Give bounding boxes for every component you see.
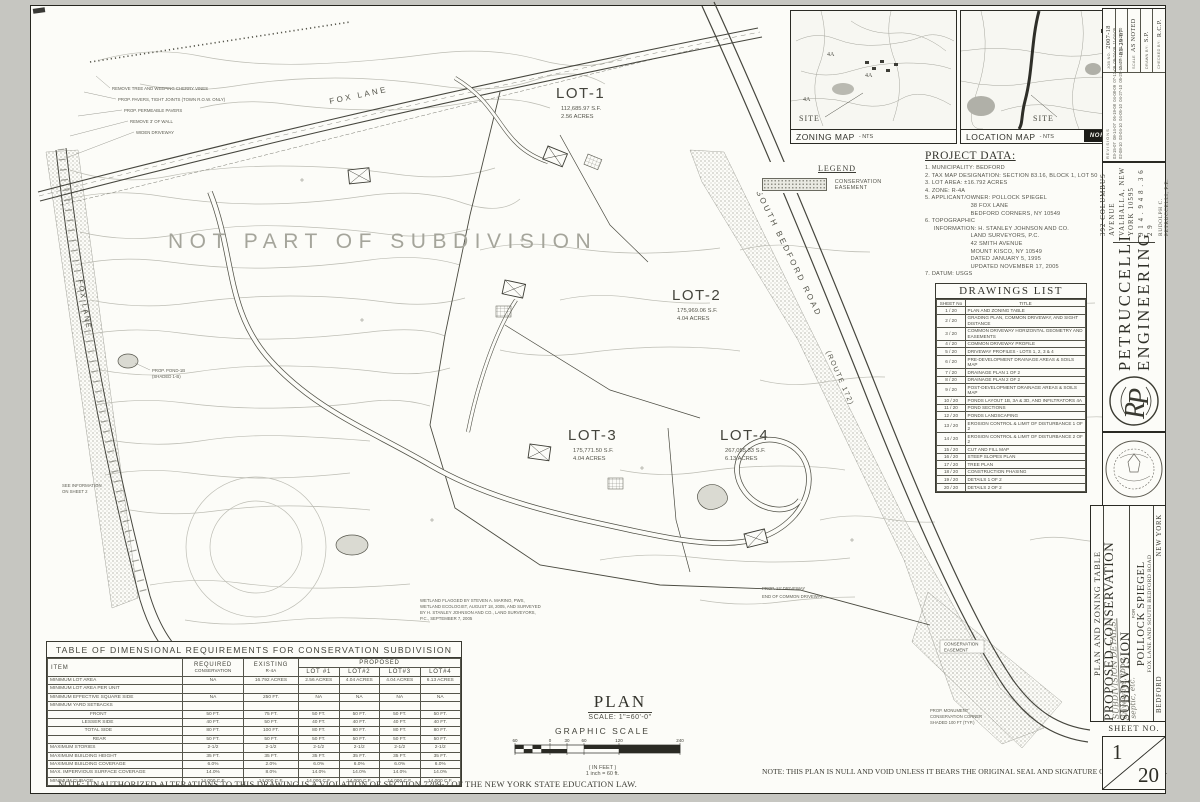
text-line: 6. TOPOGRAPHIC	[925, 218, 1097, 226]
graphic-scale-ratio: 1 inch = 60 ft.	[505, 771, 700, 777]
wetland-note: WETLAND FLAGGED BY STEVEN A. MARINO, PWS…	[420, 598, 541, 621]
town-state-row: BEDFORD NEW YORK	[1154, 506, 1165, 721]
table-cell: 35 FT.	[380, 752, 421, 760]
table-cell: DRAINAGE PLAN 2 OF 2	[966, 376, 1086, 384]
ponds	[118, 354, 728, 555]
table-cell: 40 FT.	[299, 718, 340, 726]
sheet-info-pane: JOB NO.2007-18 DATE03-29-07 SCALEAS NOTE…	[1103, 9, 1165, 72]
table-cell: 10 / 20	[937, 397, 966, 405]
table-cell: 13 / 20	[937, 419, 966, 432]
table-cell: PRE-DEVELOPMENT DRAINAGE AREAS & SOILS M…	[966, 355, 1086, 368]
table-cell: 50 FT.	[380, 710, 421, 718]
table-cell: PONDS LANDSCAPING	[966, 412, 1086, 420]
checked-by-field: CHECKED BY:R.C.P.	[1153, 9, 1165, 72]
table-cell	[339, 702, 380, 710]
septic-field	[608, 478, 623, 489]
table-cell: DRAINAGE PLAN 1 OF 2	[966, 368, 1086, 376]
svg-text:175,969.06 S.F.: 175,969.06 S.F.	[677, 308, 718, 314]
svg-text:LOT-4: LOT-4	[720, 427, 769, 444]
column-header-existing: EXISTINGR-4A	[244, 659, 299, 677]
text-line: 38 FOX LANE	[925, 203, 1097, 211]
petruccelli-logo-monogram: R P	[1106, 373, 1162, 429]
not-part-label: NOT PART OF SUBDIVISION	[168, 230, 597, 253]
text-line: 5. APPLICANT/OWNER: POLLOCK SPIEGEL	[925, 195, 1097, 203]
table-cell: PONDS LAYOUT 1B, 3A & 3D, AND INFILTRATO…	[966, 397, 1086, 405]
table-cell: 9 / 20	[937, 384, 966, 397]
client-name: POLLOCK SPIEGEL	[1136, 506, 1147, 721]
table-cell	[183, 685, 244, 693]
svg-text:EASEMENT: EASEMENT	[944, 648, 968, 653]
easement-label: CONSERVATION EASEMENT	[940, 640, 984, 653]
table-cell	[339, 685, 380, 693]
svg-text:PROP. PERMEABLE PAVERS: PROP. PERMEABLE PAVERS	[124, 108, 182, 113]
handwritten-annotation: SUBDIVISION DETAILS: driveways, topo, se…	[1109, 618, 1139, 720]
table-row: 16 / 20STEEP SLOPES PLAN	[937, 453, 1086, 461]
table-cell: 80 FT.	[380, 727, 421, 735]
text-line: BEDFORD CORNERS, NY 10549	[925, 211, 1097, 219]
table-row: MINIMUM LOT AREA PER UNIT	[48, 685, 461, 693]
table-row: MINIMUM LOT AREANA16.792 ACRES2.56 ACRES…	[48, 677, 461, 685]
table-cell: 35 FT.	[183, 752, 244, 760]
svg-text:267,055.33 S.F.: 267,055.33 S.F.	[725, 448, 766, 454]
dimensional-requirements-table: TABLE OF DIMENSIONAL REQUIREMENTS FOR CO…	[46, 641, 462, 787]
text-line: MOUNT KISCO, NY 10549	[925, 249, 1097, 257]
table-row: 11 / 20POND SECTIONS	[937, 404, 1086, 412]
svg-text:6.13 ACRES: 6.13 ACRES	[725, 456, 758, 462]
firm-name: PETRUCCELLI ENGINEERING	[1113, 242, 1155, 371]
table-cell: MINIMUM EFFECTIVE SQUARE SIDE	[48, 693, 183, 701]
state-label: NEW YORK	[1156, 514, 1163, 556]
table-cell: 4.04 ACRES	[339, 677, 380, 685]
table-row: MINIMUM EFFECTIVE SQUARE SIDENA250 FT.NA…	[48, 693, 461, 701]
lot-2-label: LOT-2 175,969.06 S.F. 4.04 ACRES	[672, 287, 721, 322]
prop-driveway-note: PROP. 12' DRIVEWAY	[762, 586, 805, 591]
table-cell: FRONT	[48, 710, 183, 718]
text-line: INFORMATION: H. STANLEY JOHNSON AND CO.	[925, 226, 1097, 234]
zone-label: 4A	[827, 52, 835, 58]
table-cell: COMMON DRIVEWAY HORIZONTAL GEOMETRY AND …	[966, 327, 1086, 340]
table-cell: EROSION CONTROL & LIMIT OF DISTURBANCE 1…	[966, 419, 1086, 432]
table-cell	[420, 702, 461, 710]
svg-text:SEE INFORMATION: SEE INFORMATION	[62, 483, 102, 488]
graphic-scale-bar: 60 0 30 60 120 240	[505, 736, 700, 760]
legend-item-label: CONSERVATION EASEMENT	[835, 179, 912, 191]
table-cell: NA	[339, 693, 380, 701]
septic-field	[584, 154, 602, 170]
table-cell: EROSION CONTROL & LIMIT OF DISTURBANCE 2…	[966, 432, 1086, 445]
drawn-by-field: DRAWN BY:S.P.	[1141, 9, 1154, 72]
svg-text:175,771.50 S.F.: 175,771.50 S.F.	[573, 448, 614, 454]
table-cell: NA	[183, 693, 244, 701]
lot-4-label: LOT-4 267,055.33 S.F. 6.13 ACRES	[720, 427, 769, 462]
table-cell: 7 / 20	[937, 368, 966, 376]
table-cell: PLAN AND ZONING TABLE	[966, 307, 1086, 315]
date-field: DATE03-29-07	[1116, 9, 1129, 72]
table-cell: NA	[380, 693, 421, 701]
revision-dates-row2: 02-08-10 03-04-10 04-05-10 04-27-10 05-2…	[1118, 75, 1123, 159]
svg-text:PROP. MONUMENT: PROP. MONUMENT	[930, 708, 969, 713]
revisions-label: REVISIONS	[1105, 75, 1110, 159]
zoning-map-graphic: 4A 4A 4A SITE	[791, 11, 956, 129]
table-cell: 6.0%	[420, 760, 461, 768]
table-row: 10 / 20PONDS LAYOUT 1B, 3A & 3D, AND INF…	[937, 397, 1086, 405]
table-row: REAR50 FT.50 FT.50 FT.50 FT.50 FT.50 FT.	[48, 735, 461, 743]
text-line: 42 SMITH AVENUE	[925, 241, 1097, 249]
construction-callouts: REMOVE TREE AND WEEPING CHERRY VINES PRO…	[66, 76, 226, 158]
table-cell: 5 / 20	[937, 348, 966, 356]
table-cell: 35 FT.	[420, 752, 461, 760]
table-row: 8 / 20DRAINAGE PLAN 2 OF 2	[937, 376, 1086, 384]
table-cell: CUT AND FILL MAP	[966, 445, 1086, 453]
table-cell: GRADING PLAN, COMMON DRIVEWAY, AND SIGHT…	[966, 314, 1086, 327]
table-cell: 4 / 20	[937, 340, 966, 348]
table-cell: MINIMUM LOT AREA PER UNIT	[48, 685, 183, 693]
table-cell: 50 FT.	[183, 710, 244, 718]
table-cell: 35 FT.	[299, 752, 340, 760]
table-row: 15 / 20CUT AND FILL MAP	[937, 445, 1086, 453]
table-cell: NA	[299, 693, 340, 701]
zoning-map-nts: - NTS	[859, 134, 873, 140]
table-cell: 2-1/2	[244, 744, 299, 752]
svg-text:4.04 ACRES: 4.04 ACRES	[573, 456, 606, 462]
table-row: 19 / 20DETAILS 1 OF 2	[937, 476, 1086, 484]
table-cell: 14 / 20	[937, 432, 966, 445]
svg-text:60: 60	[512, 738, 518, 743]
svg-text:60: 60	[581, 738, 587, 743]
table-row: 7 / 20DRAINAGE PLAN 1 OF 2	[937, 368, 1086, 376]
column-header-title: TITLE	[966, 300, 1086, 307]
table-cell: 16 / 20	[937, 453, 966, 461]
table-cell: 50 FT.	[420, 735, 461, 743]
table-cell	[244, 685, 299, 693]
table-cell: 6.0%	[299, 760, 340, 768]
job-number: JOB NO.2007-18	[1103, 9, 1116, 72]
zone-label: 4A	[803, 97, 811, 103]
table-cell: 80 FT.	[183, 727, 244, 735]
table-cell: 100 FT.	[244, 727, 299, 735]
sheet-number-box: 1 20	[1102, 736, 1166, 790]
table-cell: DRIVEWAY PROFILES - LOTS 1, 2, 3 & 4	[966, 348, 1086, 356]
table-cell: 11 / 20	[937, 404, 966, 412]
table-cell	[380, 702, 421, 710]
table-cell: CONSTRUCTION PHASING	[966, 468, 1086, 476]
table-cell: 50 FT.	[244, 735, 299, 743]
table-cell: 80 FT.	[420, 727, 461, 735]
legend-title: LEGEND	[762, 164, 912, 173]
table-row: 13 / 20EROSION CONTROL & LIMIT OF DISTUR…	[937, 419, 1086, 432]
table-cell: 6.0%	[339, 760, 380, 768]
svg-text:2.56 ACRES: 2.56 ACRES	[561, 114, 594, 120]
table-cell: 19 / 20	[937, 476, 966, 484]
table-cell: 12 / 20	[937, 412, 966, 420]
table-cell: POND SECTIONS	[966, 404, 1086, 412]
table-row: 14 / 20EROSION CONTROL & LIMIT OF DISTUR…	[937, 432, 1086, 445]
location-map-graphic: SITE	[961, 11, 1121, 129]
svg-text:PROP. PAVERS, TIGHT JOINTS (TO: PROP. PAVERS, TIGHT JOINTS (TOWN R.O.W. …	[118, 97, 226, 102]
table-cell: 50 FT.	[339, 710, 380, 718]
table-cell: 50 FT.	[183, 735, 244, 743]
table-cell: NA	[183, 677, 244, 685]
town-label: BEDFORD	[1156, 676, 1163, 713]
table-row: MAXIMUM BUILDING COVERAGE6.0%2.0%6.0%6.0…	[48, 760, 461, 768]
title-section: PLAN AND ZONING TABLE PROPOSED CONSERVAT…	[1090, 505, 1166, 722]
table-cell: DETAILS 1 OF 2	[966, 476, 1086, 484]
svg-text:LOT-2: LOT-2	[672, 287, 721, 304]
table-cell: 14.0%	[183, 769, 244, 777]
table-row: 5 / 20DRIVEWAY PROFILES - LOTS 1, 2, 3 &…	[937, 348, 1086, 356]
table-cell: 40 FT.	[339, 718, 380, 726]
site-label: SITE	[1033, 114, 1054, 123]
column-header-required: REQUIREDCONSERVATION	[183, 659, 244, 677]
table-row: 2 / 20GRADING PLAN, COMMON DRIVEWAY, AND…	[937, 314, 1086, 327]
end-driveway-note: END OF COMMON DRIVEWAY	[762, 594, 823, 599]
table-cell: 16.792 ACRES	[244, 677, 299, 685]
graphic-scale: GRAPHIC SCALE 60 0 30 60 120 240 ( IN FE…	[505, 726, 700, 777]
table-row: 3 / 20COMMON DRIVEWAY HORIZONTAL GEOMETR…	[937, 327, 1086, 340]
table-cell	[244, 702, 299, 710]
table-cell: 6.0%	[183, 760, 244, 768]
table-cell: NA	[420, 693, 461, 701]
table-cell: 14.0%	[380, 769, 421, 777]
svg-text:(SHADED 1-B): (SHADED 1-B)	[152, 374, 181, 379]
table-cell: 50 FT.	[339, 735, 380, 743]
table-cell: 8 / 20	[937, 376, 966, 384]
table-row: MAX. IMPERVIOUS SURFACE COVERAGE14.0%8.0…	[48, 769, 461, 777]
table-cell	[380, 685, 421, 693]
table-cell: 2-1/2	[339, 744, 380, 752]
project-data-title: PROJECT DATA:	[925, 150, 1097, 162]
svg-text:P.C., SEPTEMBER 7, 2005: P.C., SEPTEMBER 7, 2005	[420, 616, 473, 621]
table-row: 9 / 20POST-DEVELOPMENT DRAINAGE AREAS & …	[937, 384, 1086, 397]
table-row: MAXIMUM STORIES2-1/22-1/22-1/22-1/22-1/2…	[48, 744, 461, 752]
graphic-scale-title: GRAPHIC SCALE	[505, 726, 700, 736]
site-label: SITE	[799, 114, 820, 123]
table-cell: 35 FT.	[339, 752, 380, 760]
client-row: SUBDIVISION DETAILS: driveways, topo, se…	[1130, 506, 1154, 721]
table-cell: MAXIMUM STORIES	[48, 744, 183, 752]
table-cell: 20 / 20	[937, 483, 966, 491]
table-row: 4 / 20COMMON DRIVEWAY PROFILE	[937, 340, 1086, 348]
project-data: PROJECT DATA: 1. MUNICIPALITY: BEDFORD2.…	[925, 150, 1097, 279]
drawings-list: DRAWINGS LIST SHEET No TITLE 1 / 20PLAN …	[935, 283, 1087, 493]
project-location: FOX LANE AND SOUTH BEDFORD ROAD	[1147, 506, 1153, 721]
sheet-total: 20	[1138, 763, 1159, 788]
zone-label: 4A	[865, 73, 873, 79]
location-map-nts: - NTS	[1040, 134, 1054, 140]
svg-text:SHADED 100 FT (TYP.): SHADED 100 FT (TYP.)	[930, 720, 975, 725]
table-cell: 6.0%	[380, 760, 421, 768]
svg-text:WETLAND ECOLOGIST, AUGUST 18,: WETLAND ECOLOGIST, AUGUST 18, 2005, AND …	[420, 604, 541, 609]
text-line: LAND SURVEYORS, P.C.	[925, 233, 1097, 241]
table-cell: 2.0%	[244, 760, 299, 768]
table-cell: 2-1/2	[380, 744, 421, 752]
firm-address: 392 COLUMBUS AVENUE VALHALLA, NEW YORK 1…	[1099, 163, 1170, 242]
table-cell: 14.0%	[299, 769, 340, 777]
lot-3-label: LOT-3 175,771.50 S.F. 4.04 ACRES	[568, 427, 617, 462]
table-cell: 8.0%	[244, 769, 299, 777]
svg-text:LOT-1: LOT-1	[556, 85, 605, 102]
svg-text:REMOVE 3' OF WALL: REMOVE 3' OF WALL	[130, 119, 174, 124]
table-row: LESSER SIDE40 FT.50 FT.40 FT.40 FT.40 FT…	[48, 718, 461, 726]
revision-dates-row1: 03-15-07 08-14-07 06-19-08 04-08-09 07-1…	[1112, 75, 1117, 159]
table-cell: 6 / 20	[937, 355, 966, 368]
table-row: 12 / 20PONDS LANDSCAPING	[937, 412, 1086, 420]
engineer-seal	[1104, 436, 1164, 502]
table-cell: MAXIMUM BUILDING COVERAGE	[48, 760, 183, 768]
table-cell: 14.0%	[420, 769, 461, 777]
location-map-caption: LOCATION MAP - NTS NORTH	[961, 129, 1121, 143]
table-cell: 6.13 ACRES	[420, 677, 461, 685]
lot-1-label: LOT-1 112,685.97 S.F. 2.56 ACRES	[556, 85, 605, 120]
svg-text:CONSERVATION: CONSERVATION	[944, 642, 978, 647]
conservation-easement-swatch	[762, 178, 827, 191]
text-line: 3. LOT AREA: ±16.792 ACRES	[925, 180, 1097, 188]
sheet-number: 1	[1112, 740, 1123, 765]
text-line: 2. TAX MAP DESIGNATION: SECTION 83.16, B…	[925, 173, 1097, 181]
table-cell: REAR	[48, 735, 183, 743]
table-cell: 40 FT.	[420, 718, 461, 726]
column-header-lot3: LOT#3	[380, 668, 421, 677]
table-cell: 80 FT.	[339, 727, 380, 735]
column-header-proposed: PROPOSED	[299, 659, 461, 668]
column-header-lot1: LOT #1	[299, 668, 340, 677]
table-row: TOTAL SIDE80 FT.100 FT.80 FT.80 FT.80 FT…	[48, 727, 461, 735]
svg-text:0: 0	[549, 738, 552, 743]
table-cell: 17 / 20	[937, 461, 966, 469]
table-row: 17 / 20TREE PLAN	[937, 461, 1086, 469]
table-cell: 50 FT.	[420, 710, 461, 718]
dimensional-table-title: TABLE OF DIMENSIONAL REQUIREMENTS FOR CO…	[47, 642, 461, 658]
pond-callout: PROP. POND-1B (SHADED 1-B)	[135, 363, 185, 379]
text-line: 4. ZONE: R-4A	[925, 188, 1097, 196]
table-cell	[420, 685, 461, 693]
table-cell: 2-1/2	[420, 744, 461, 752]
engineering-firm-block: R P PETRUCCELLI ENGINEERING 392 COLUMBUS…	[1102, 162, 1166, 432]
scale-field: SCALEAS NOTED	[1128, 9, 1141, 72]
drawings-list-table: SHEET No TITLE 1 / 20PLAN AND ZONING TAB…	[936, 299, 1086, 492]
table-cell: COMMON DRIVEWAY PROFILE	[966, 340, 1086, 348]
location-map-title: LOCATION MAP	[966, 132, 1036, 142]
table-cell: DETAILS 2 OF 2	[966, 483, 1086, 491]
svg-text:4.04 ACRES: 4.04 ACRES	[677, 316, 710, 322]
zoning-map-panel: 4A 4A 4A SITE ZONING MAP - NTS	[790, 10, 957, 144]
table-cell: 250 FT.	[244, 693, 299, 701]
text-line: 7. DATUM: USGS	[925, 271, 1097, 279]
table-cell: 80 FT.	[299, 727, 340, 735]
table-row: MAXIMUM BUILDING HEIGHT35 FT.35 FT.35 FT…	[48, 752, 461, 760]
text-line: DATED JANUARY 5, 1995	[925, 256, 1097, 264]
revision-info-box: REVISIONS 03-15-07 08-14-07 06-19-08 04-…	[1102, 8, 1166, 162]
zoning-map-caption: ZONING MAP - NTS	[791, 129, 956, 143]
table-cell: 2.56 ACRES	[299, 677, 340, 685]
column-header-lot2: LOT#2	[339, 668, 380, 677]
svg-text:120: 120	[615, 738, 623, 743]
table-row: 1 / 20PLAN AND ZONING TABLE	[937, 307, 1086, 315]
table-row: 6 / 20PRE-DEVELOPMENT DRAINAGE AREAS & S…	[937, 355, 1086, 368]
table-cell: 18 / 20	[937, 468, 966, 476]
table-cell: MINIMUM LOT AREA	[48, 677, 183, 685]
table-row: MINIMUM YARD SETBACKS	[48, 702, 461, 710]
plan-title-block: PLAN SCALE: 1"=60'-0"	[560, 692, 680, 721]
plan-title: PLAN	[588, 692, 652, 713]
drawings-list-title: DRAWINGS LIST	[936, 284, 1086, 299]
table-cell: 50 FT.	[299, 735, 340, 743]
table-cell: 50 FT.	[244, 718, 299, 726]
zoning-map-title: ZONING MAP	[796, 132, 855, 142]
svg-text:240: 240	[676, 738, 684, 743]
svg-text:CONSERVATION CORNER: CONSERVATION CORNER	[930, 714, 982, 719]
column-header-item: ITEM	[48, 659, 183, 677]
table-cell: 75 FT.	[244, 710, 299, 718]
svg-text:BY H. STANLEY JOHNSON AND CO.,: BY H. STANLEY JOHNSON AND CO., LAND SURV…	[420, 610, 536, 615]
table-cell: 14.0%	[339, 769, 380, 777]
table-cell: POST-DEVELOPMENT DRAINAGE AREAS & SOILS …	[966, 384, 1086, 397]
table-cell	[183, 702, 244, 710]
svg-text:REMOVE TREE AND WEEPING CHERRY: REMOVE TREE AND WEEPING CHERRY VINES	[112, 86, 208, 91]
table-row: 18 / 20CONSTRUCTION PHASING	[937, 468, 1086, 476]
table-cell: STEEP SLOPES PLAN	[966, 453, 1086, 461]
table-cell: 2 / 20	[937, 314, 966, 327]
column-header-lot4: LOT#4	[420, 668, 461, 677]
table-cell: 4.04 ACRES	[380, 677, 421, 685]
text-line: 1. MUNICIPALITY: BEDFORD	[925, 165, 1097, 173]
revisions-pane: REVISIONS 03-15-07 08-14-07 06-19-08 04-…	[1103, 72, 1165, 161]
table-cell	[299, 702, 340, 710]
table-cell	[299, 685, 340, 693]
svg-text:30: 30	[564, 738, 570, 743]
table-cell: TREE PLAN	[966, 461, 1086, 469]
table-cell: TOTAL SIDE	[48, 727, 183, 735]
plan-scale: SCALE: 1"=60'-0"	[560, 714, 680, 721]
septic-field	[496, 306, 511, 317]
project-data-lines: 1. MUNICIPALITY: BEDFORD2. TAX MAP DESIG…	[925, 165, 1097, 279]
table-cell: 2-1/2	[299, 744, 340, 752]
education-law-note: NOTE: UNAUTHORIZED ALTERATIONS TO THIS D…	[58, 779, 637, 789]
text-line: UPDATED NOVEMBER 17, 2005	[925, 264, 1097, 272]
table-cell: MAX. IMPERVIOUS SURFACE COVERAGE	[48, 769, 183, 777]
legend: LEGEND CONSERVATION EASEMENT	[758, 162, 916, 193]
table-cell: MAXIMUM BUILDING HEIGHT	[48, 752, 183, 760]
engineer-name: RUDOLPH C. PETRUCCELLI, P.E.	[1158, 163, 1170, 236]
svg-text:LOT-3: LOT-3	[568, 427, 617, 444]
location-map-panel: SITE LOCATION MAP - NTS NORTH	[960, 10, 1122, 144]
svg-text:PROP. POND-1B: PROP. POND-1B	[152, 368, 185, 373]
table-row: FRONT50 FT.75 FT.50 FT.50 FT.50 FT.50 FT…	[48, 710, 461, 718]
table-row: 20 / 20DETAILS 2 OF 2	[937, 483, 1086, 491]
table-cell: 40 FT.	[380, 718, 421, 726]
table-cell: 50 FT.	[380, 735, 421, 743]
table-cell: 15 / 20	[937, 445, 966, 453]
fox-lane-label: FOX LANE	[329, 85, 389, 106]
table-cell: 35 FT.	[244, 752, 299, 760]
svg-text:ON SHEET 2: ON SHEET 2	[62, 489, 88, 494]
column-header-sheet-no: SHEET No	[937, 300, 966, 307]
svg-text:WETLAND FLAGGED BY STEVEN A. M: WETLAND FLAGGED BY STEVEN A. MARINO, PWS…	[420, 598, 525, 603]
svg-text:WIDEN DRIVEWAY: WIDEN DRIVEWAY	[136, 130, 174, 135]
table-cell: 3 / 20	[937, 327, 966, 340]
svg-text:112,685.97 S.F.: 112,685.97 S.F.	[561, 106, 602, 112]
table-cell: LESSER SIDE	[48, 718, 183, 726]
table-cell: 50 FT.	[299, 710, 340, 718]
table-cell: MINIMUM YARD SETBACKS	[48, 702, 183, 710]
table-cell: 2-1/2	[183, 744, 244, 752]
table-cell: 40 FT.	[183, 718, 244, 726]
sheet-no-label: SHEET NO.	[1102, 724, 1166, 733]
dimensional-table: ITEM REQUIREDCONSERVATION EXISTINGR-4A P…	[47, 658, 461, 786]
table-cell: 1 / 20	[937, 307, 966, 315]
